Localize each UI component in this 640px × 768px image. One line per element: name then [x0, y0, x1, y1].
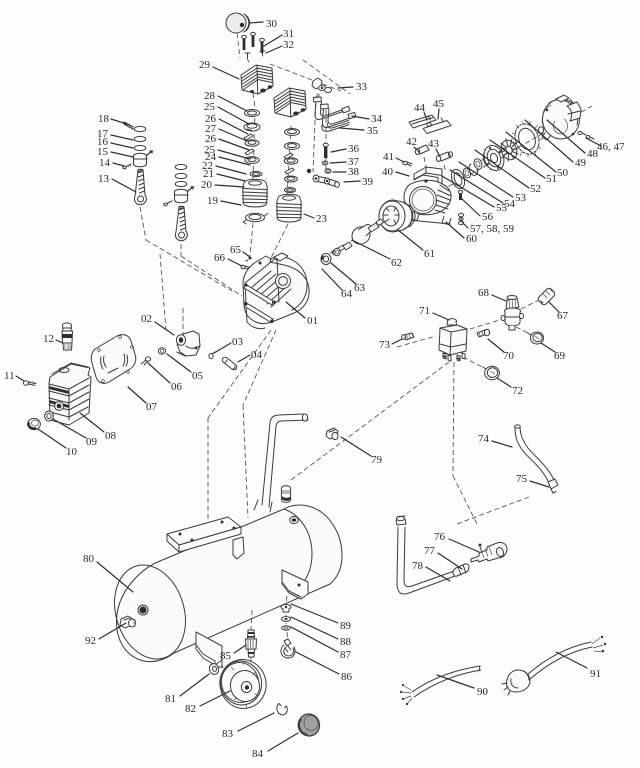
- svg-text:34: 34: [371, 113, 383, 125]
- svg-text:06: 06: [171, 381, 183, 393]
- svg-text:60: 60: [466, 233, 478, 245]
- svg-text:14: 14: [99, 157, 111, 169]
- svg-text:35: 35: [367, 125, 379, 137]
- svg-text:65: 65: [230, 244, 242, 256]
- svg-text:75: 75: [516, 473, 528, 485]
- svg-text:88: 88: [340, 636, 352, 648]
- svg-text:48: 48: [587, 148, 599, 160]
- svg-text:73: 73: [379, 339, 391, 351]
- svg-text:43: 43: [428, 138, 440, 150]
- svg-text:66: 66: [214, 252, 226, 264]
- svg-text:91: 91: [590, 668, 601, 680]
- svg-text:80: 80: [83, 553, 95, 565]
- svg-text:30: 30: [266, 18, 278, 30]
- svg-text:85: 85: [220, 650, 232, 662]
- svg-text:64: 64: [341, 288, 353, 300]
- svg-text:11: 11: [4, 370, 15, 382]
- svg-text:38: 38: [348, 166, 360, 178]
- svg-text:89: 89: [340, 620, 352, 632]
- svg-text:87: 87: [340, 649, 352, 661]
- svg-text:86: 86: [341, 671, 353, 683]
- svg-text:84: 84: [252, 748, 264, 760]
- svg-text:79: 79: [371, 454, 383, 466]
- svg-text:50: 50: [557, 167, 569, 179]
- svg-text:78: 78: [412, 560, 424, 572]
- svg-text:39: 39: [362, 176, 374, 188]
- svg-text:81: 81: [165, 693, 176, 705]
- svg-text:53: 53: [515, 192, 527, 204]
- svg-text:56: 56: [482, 211, 494, 223]
- svg-text:12: 12: [43, 333, 54, 345]
- svg-text:76: 76: [434, 531, 446, 543]
- svg-text:18: 18: [98, 113, 110, 125]
- svg-text:02: 02: [141, 313, 152, 325]
- svg-text:32: 32: [283, 39, 294, 51]
- svg-text:42: 42: [406, 136, 417, 148]
- svg-text:71: 71: [419, 305, 430, 317]
- svg-text:46, 47: 46, 47: [597, 141, 625, 153]
- svg-text:72: 72: [512, 385, 523, 397]
- svg-text:61: 61: [424, 248, 435, 260]
- svg-text:09: 09: [86, 436, 98, 448]
- svg-text:25: 25: [204, 101, 216, 113]
- svg-text:90: 90: [477, 686, 489, 698]
- svg-text:49: 49: [575, 157, 587, 169]
- svg-text:77: 77: [424, 545, 436, 557]
- svg-text:08: 08: [105, 430, 117, 442]
- svg-text:74: 74: [478, 433, 490, 445]
- svg-text:70: 70: [503, 350, 515, 362]
- svg-text:03: 03: [232, 336, 244, 348]
- svg-text:55: 55: [496, 202, 508, 214]
- svg-text:83: 83: [222, 728, 234, 740]
- svg-text:29: 29: [199, 59, 211, 71]
- svg-text:13: 13: [98, 173, 110, 185]
- svg-text:36: 36: [348, 143, 360, 155]
- svg-text:41: 41: [383, 151, 394, 163]
- svg-text:05: 05: [192, 370, 204, 382]
- svg-text:40: 40: [382, 166, 394, 178]
- svg-text:33: 33: [356, 81, 368, 93]
- svg-text:04: 04: [251, 349, 263, 361]
- svg-text:51: 51: [546, 173, 557, 185]
- svg-text:69: 69: [554, 350, 566, 362]
- svg-text:45: 45: [433, 98, 445, 110]
- svg-text:68: 68: [478, 287, 490, 299]
- svg-text:20: 20: [201, 179, 213, 191]
- svg-text:19: 19: [207, 195, 219, 207]
- svg-text:62: 62: [391, 257, 402, 269]
- svg-text:52: 52: [530, 183, 541, 195]
- svg-text:01: 01: [307, 315, 318, 327]
- svg-text:23: 23: [316, 213, 328, 225]
- svg-text:07: 07: [146, 401, 158, 413]
- svg-text:92: 92: [85, 635, 96, 647]
- svg-text:10: 10: [66, 446, 78, 458]
- svg-text:82: 82: [185, 703, 196, 715]
